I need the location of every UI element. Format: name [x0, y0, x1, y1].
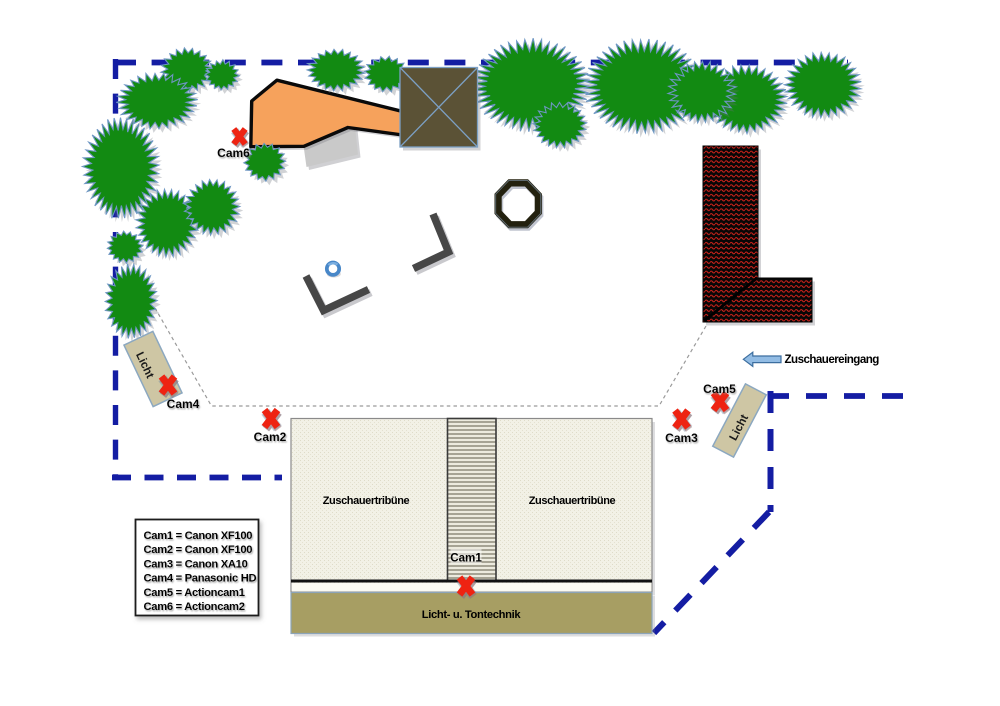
svg-text:Cam5 = Actioncam1: Cam5 = Actioncam1 — [144, 587, 245, 599]
svg-text:Licht- u. Tontechnik: Licht- u. Tontechnik — [422, 609, 522, 621]
svg-text:Cam3: Cam3 — [665, 431, 698, 445]
svg-text:Cam3 = Canon XA10: Cam3 = Canon XA10 — [144, 558, 248, 570]
svg-text:Cam6: Cam6 — [217, 146, 250, 160]
svg-text:Cam6 = Actioncam2: Cam6 = Actioncam2 — [144, 601, 245, 613]
svg-text:Zuschauertribüne: Zuschauertribüne — [323, 495, 410, 507]
svg-text:Cam1: Cam1 — [450, 552, 482, 565]
svg-text:Zuschauertribüne: Zuschauertribüne — [529, 495, 616, 507]
svg-text:Cam4: Cam4 — [167, 397, 200, 411]
svg-text:Cam4 = Panasonic HD: Cam4 = Panasonic HD — [144, 573, 257, 585]
svg-text:Cam2 = Canon XF100: Cam2 = Canon XF100 — [144, 544, 253, 556]
svg-text:Zuschauereingang: Zuschauereingang — [785, 353, 880, 366]
svg-text:Cam2: Cam2 — [254, 430, 287, 444]
svg-text:Cam5: Cam5 — [703, 382, 736, 396]
svg-text:Cam1 = Canon XF100: Cam1 = Canon XF100 — [144, 530, 253, 542]
